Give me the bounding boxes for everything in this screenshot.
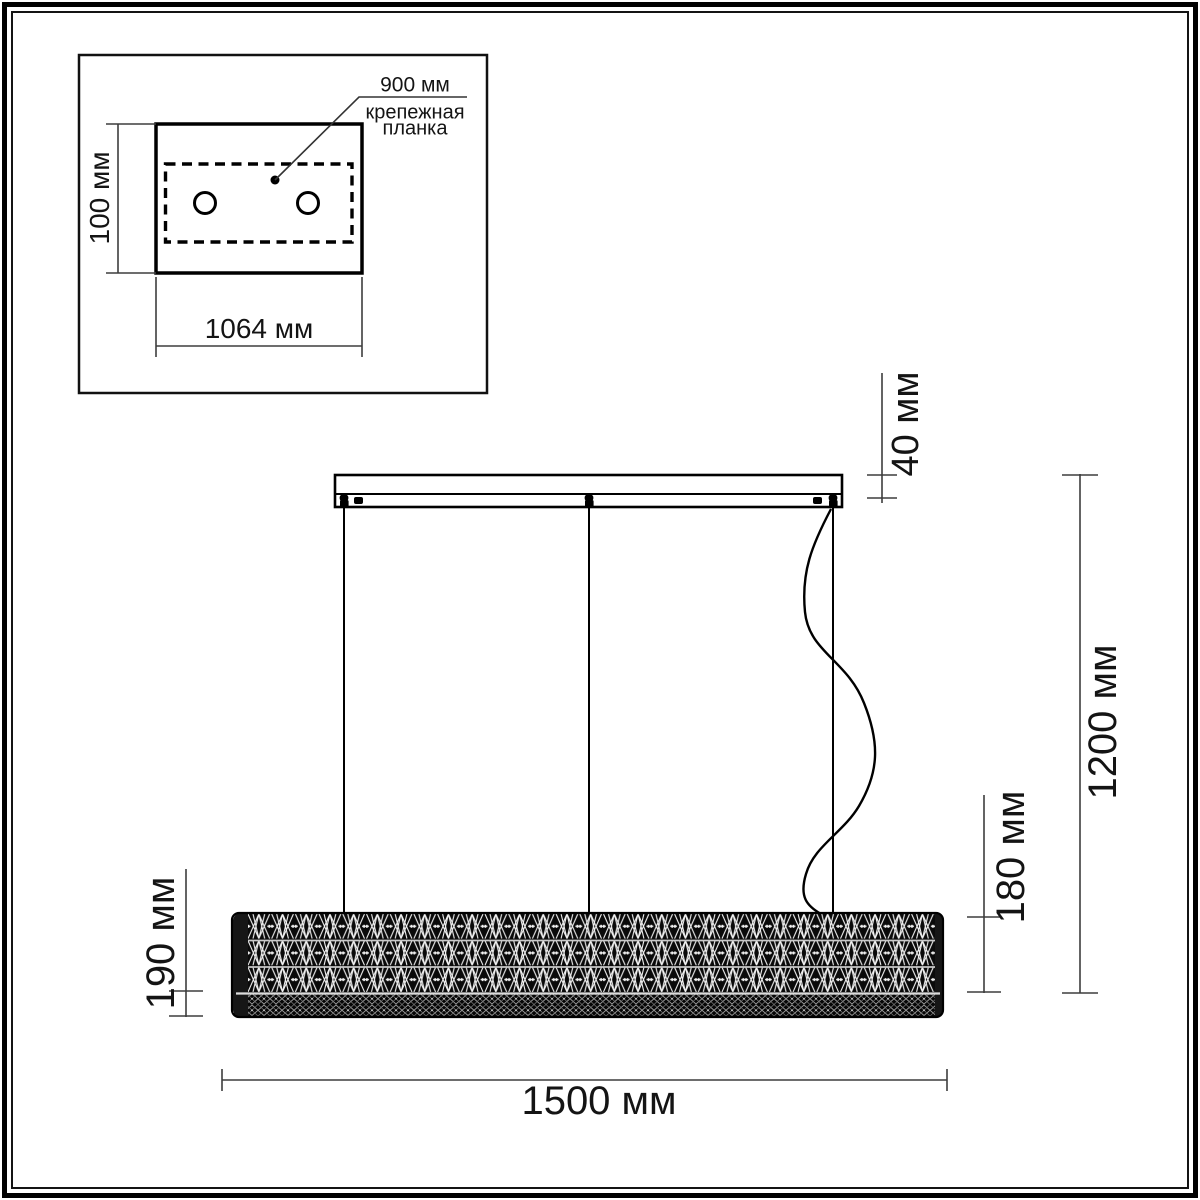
mount-hole-right	[298, 193, 319, 214]
shade-length-label: 1500 мм	[521, 1081, 676, 1121]
crystal-pattern-rows	[247, 914, 935, 993]
shade-right-cap	[935, 913, 943, 1017]
overall-height-label: 1200 мм	[1083, 644, 1123, 799]
plate-width-label: 1064 мм	[205, 315, 314, 343]
mount-bar-length-label: 900 мм	[380, 75, 450, 96]
canopy-height-label: 40 мм	[887, 371, 925, 476]
crystal-shade	[232, 913, 943, 1017]
dimension-drawing-canvas	[0, 0, 1200, 1200]
crystal-bottom-band	[234, 993, 941, 1016]
plate-height-label: 100 мм	[86, 152, 114, 245]
shade-height-left-label: 190 мм	[141, 877, 181, 1010]
power-cable-wavy	[803, 509, 875, 914]
mount-hole-left	[195, 193, 216, 214]
technical-drawing-page: 900 мм крепежная планка 100 мм 1064 мм 4…	[0, 0, 1200, 1200]
shade-left-cap	[232, 913, 248, 1017]
suspension-wires	[344, 508, 833, 913]
canopy-plate-outline	[156, 124, 362, 273]
shade-height-right-label: 180 мм	[991, 791, 1031, 924]
main-view	[169, 373, 1098, 1091]
mount-bar-name-label: крепежная планка	[365, 105, 464, 136]
